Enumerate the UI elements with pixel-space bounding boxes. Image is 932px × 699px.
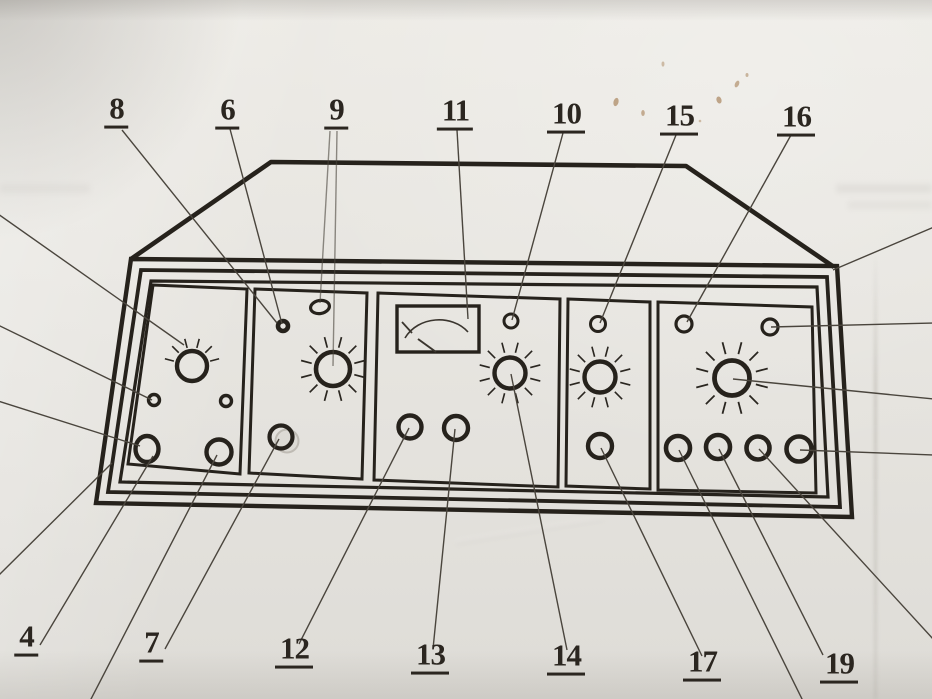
section-2	[270, 299, 365, 453]
meter-needle	[418, 339, 436, 352]
scanned-diagram-page: 8 6 9 11 10 15 16 4 7 12 13 14 17 19	[0, 0, 932, 699]
rotary-knob	[495, 358, 526, 389]
callout-label-14: 14	[547, 640, 585, 676]
panel-sections	[128, 285, 816, 493]
callout-label-9: 9	[324, 94, 348, 130]
round-socket	[787, 437, 812, 462]
callout-label-15: 15	[660, 100, 698, 136]
section-2-box	[249, 289, 367, 479]
leader-line-right-1	[833, 227, 932, 270]
round-socket	[666, 436, 690, 460]
callout-label-17: 17	[683, 646, 721, 682]
leader-line-8	[122, 130, 277, 323]
knob-rays	[480, 343, 541, 404]
small-dot-indicator	[278, 321, 288, 331]
meter-scale-arc	[405, 320, 468, 338]
section-4	[570, 317, 631, 459]
small-indicator	[221, 396, 232, 407]
leader-line-9b	[333, 131, 337, 366]
knob-rays	[570, 347, 631, 408]
cabinet-top-outline	[131, 162, 834, 267]
leader-line-11	[457, 130, 468, 319]
rotary-knob	[585, 362, 616, 393]
callout-label-19: 19	[820, 648, 858, 684]
small-indicator	[149, 395, 160, 406]
round-socket	[588, 434, 612, 458]
meter-tick	[402, 322, 412, 333]
callout-label-8: 8	[104, 93, 128, 129]
leader-line-left-2	[0, 325, 152, 400]
small-indicator	[591, 317, 606, 332]
panel-frame	[96, 259, 852, 517]
callout-label-10: 10	[547, 98, 585, 134]
rotary-knob	[177, 351, 207, 381]
section-4-box	[566, 299, 650, 489]
callout-label-16: 16	[777, 101, 815, 137]
knob-rays	[696, 342, 767, 413]
small-indicator	[504, 314, 518, 328]
leader-line-9a	[320, 131, 330, 303]
round-socket	[444, 416, 468, 440]
callout-label-4: 4	[14, 621, 38, 657]
leader-line-10	[512, 133, 563, 320]
callout-label-11: 11	[437, 95, 473, 131]
callout-label-13: 13	[411, 639, 449, 675]
callout-label-12: 12	[275, 633, 313, 669]
round-socket	[207, 440, 232, 465]
panel-frame-outer	[96, 259, 852, 517]
leader-lines	[40, 129, 823, 656]
leader-line-12	[299, 428, 409, 644]
leader-line-7	[165, 439, 279, 649]
round-socket	[399, 416, 422, 439]
section-1	[136, 339, 232, 465]
leader-line-right-2	[771, 323, 932, 327]
leader-line-right-5	[759, 449, 932, 640]
leader-line-right-4	[800, 450, 932, 455]
rotary-knob	[715, 361, 750, 396]
round-socket	[706, 435, 730, 459]
leader-line-left-4	[0, 463, 112, 576]
section-5	[666, 316, 812, 462]
callout-label-6: 6	[215, 94, 239, 130]
leader-line-13	[433, 429, 455, 649]
round-socket	[136, 436, 159, 462]
callout-label-7: 7	[139, 627, 163, 663]
leader-line-19	[719, 449, 823, 655]
section-3	[397, 306, 540, 440]
